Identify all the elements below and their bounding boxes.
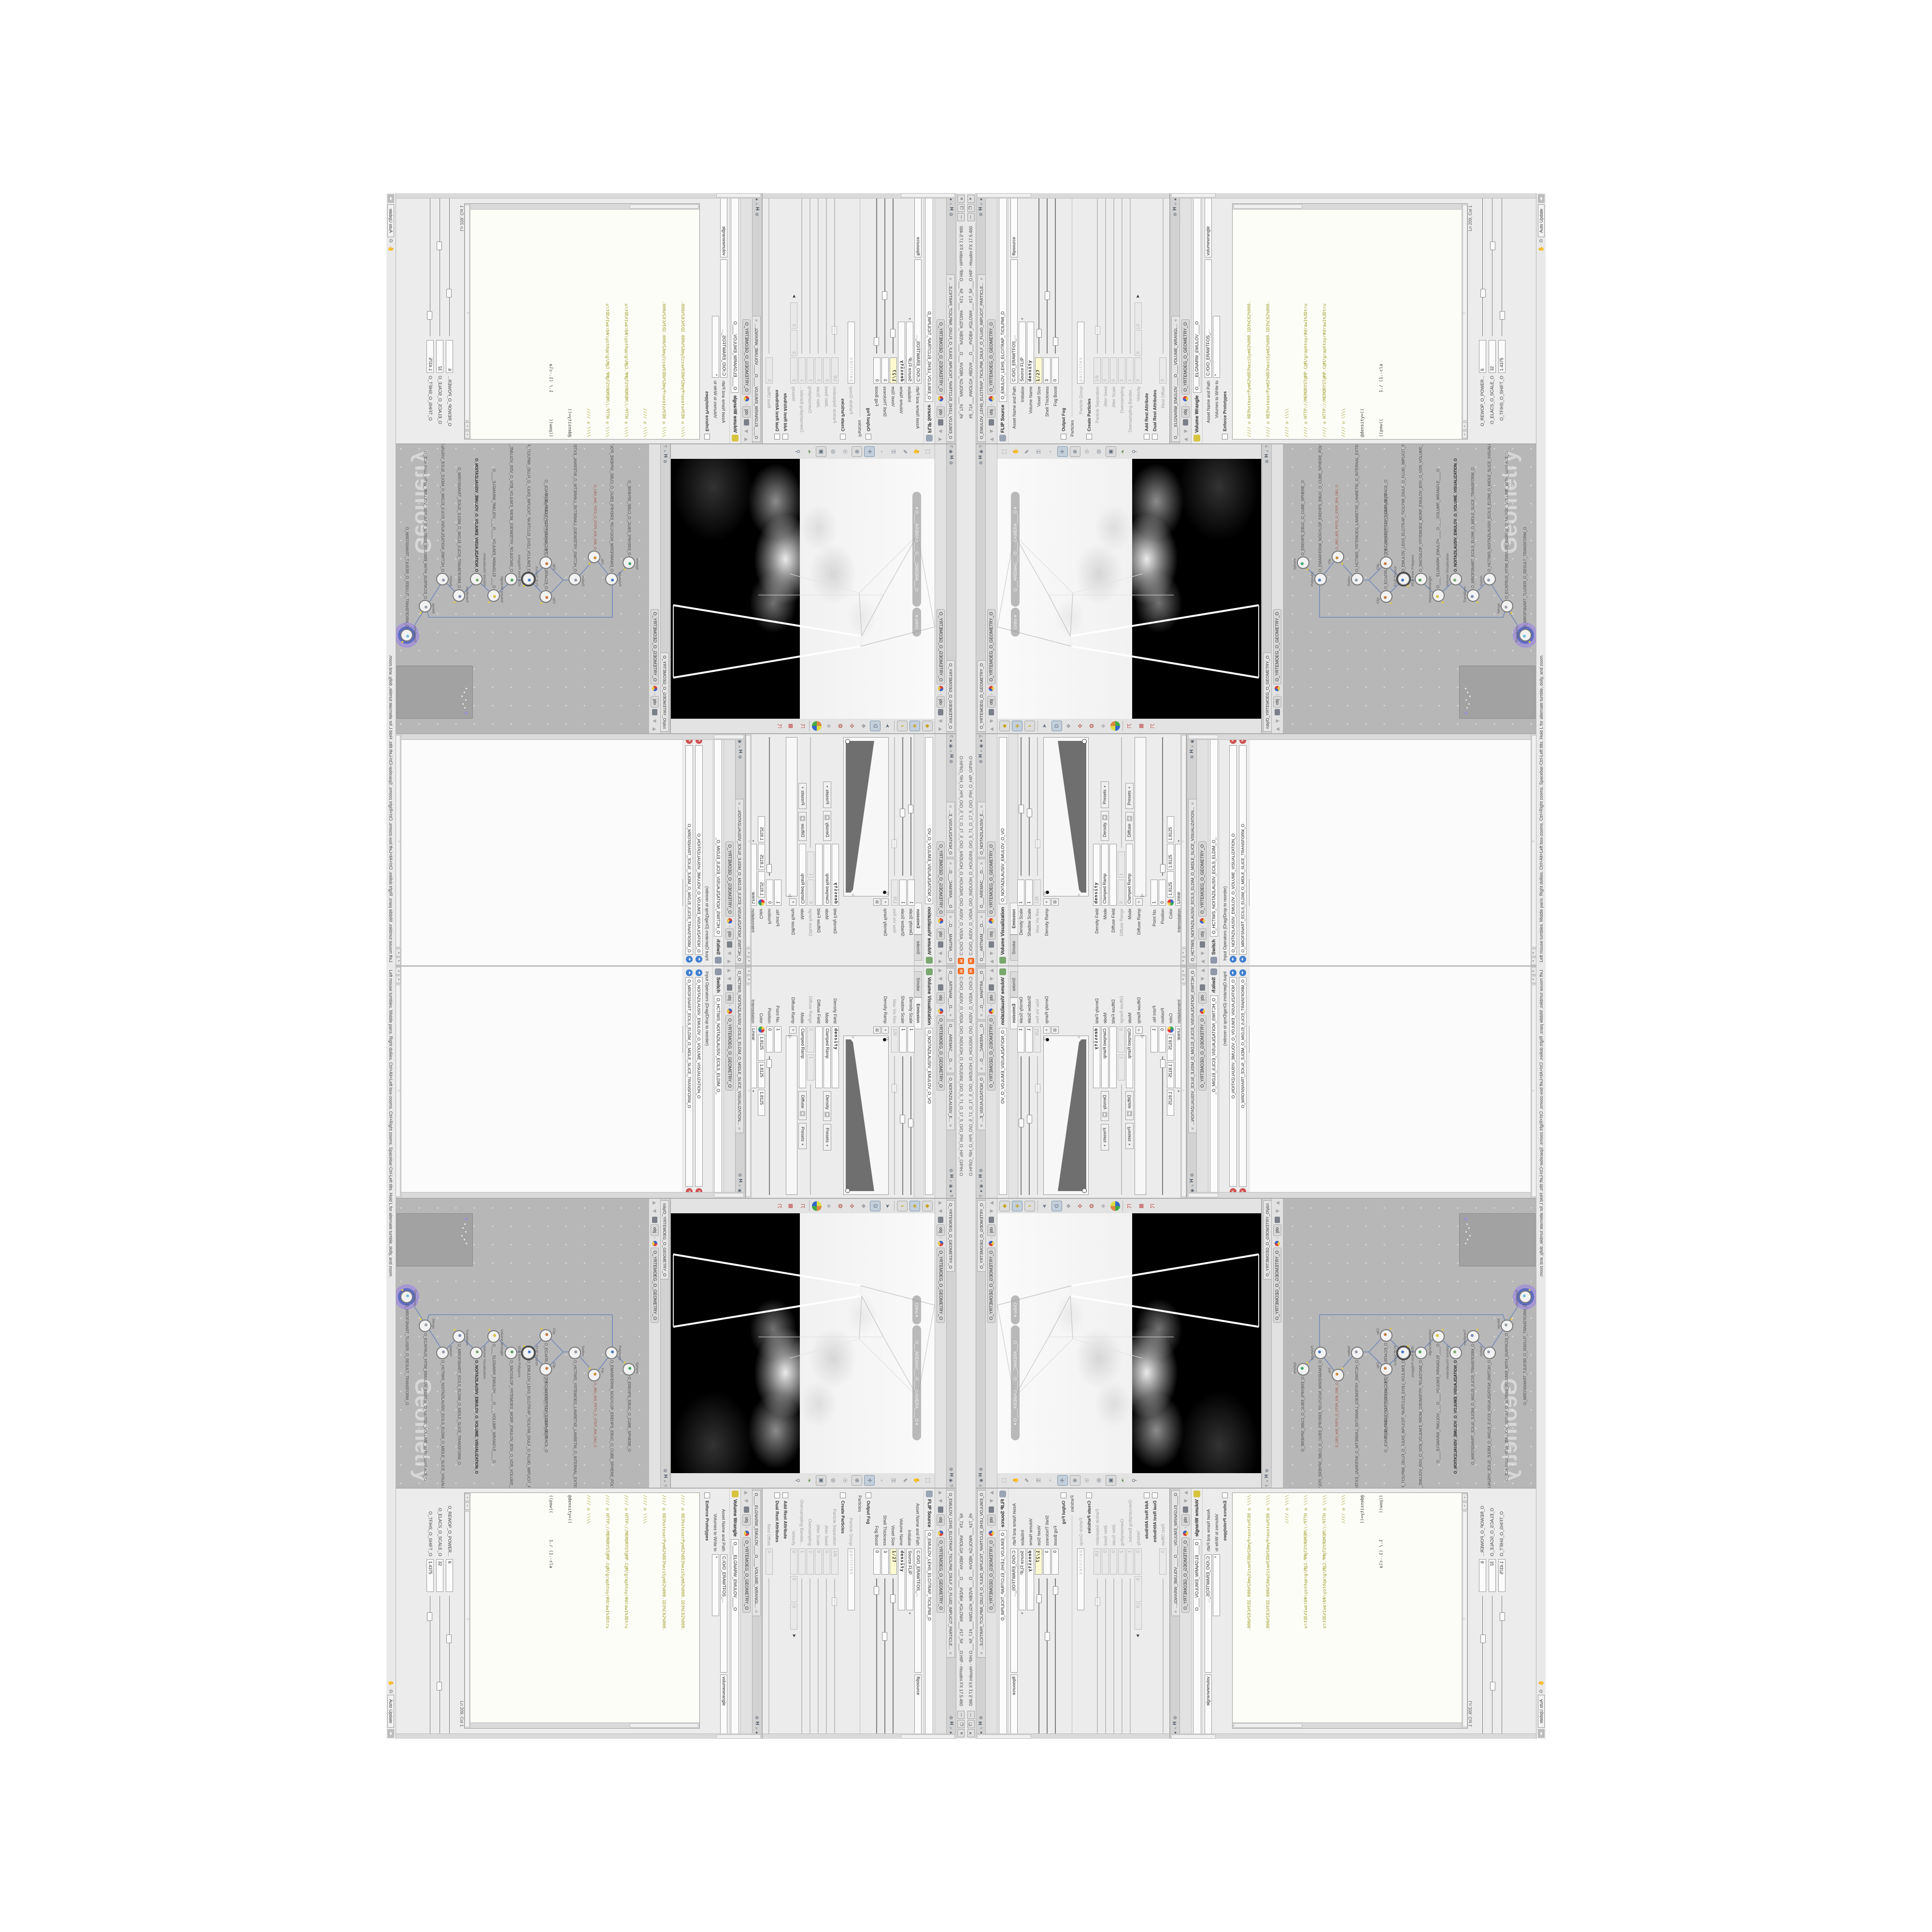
- rest-offset-slider[interactable]: [1160, 196, 1166, 354]
- position-slider[interactable]: [1159, 737, 1165, 876]
- position-field[interactable]: 0: [766, 1026, 773, 1052]
- target-icon[interactable]: ◉: [949, 744, 954, 748]
- houdini-pane-icon[interactable]: H: [738, 1179, 743, 1182]
- houdini-pane-icon[interactable]: H: [1264, 1475, 1269, 1478]
- shaded-mode-icon[interactable]: ◈: [909, 721, 920, 731]
- recycle-icon[interactable]: ♻: [1539, 239, 1544, 243]
- gear-icon[interactable]: ⚙: [1190, 755, 1194, 759]
- gear-icon[interactable]: ⚙: [755, 1716, 760, 1719]
- snap-point-icon[interactable]: ☈: [1148, 721, 1158, 731]
- create-particles-checkbox[interactable]: [1086, 1492, 1092, 1498]
- ramp-add-icon[interactable]: +: [1136, 1026, 1143, 1034]
- shift-slider[interactable]: [1499, 1596, 1505, 1734]
- pencil-icon[interactable]: ✎: [1023, 1476, 1032, 1485]
- horizontal-scrollbar[interactable]: ◂ ▸ ⠿: [396, 734, 401, 966]
- asset-name-field[interactable]: flipsource: [1010, 196, 1018, 257]
- pinwheel-icon[interactable]: [1110, 721, 1120, 731]
- fog-boost-field[interactable]: 0: [1051, 1548, 1059, 1575]
- node-name-field[interactable]: O_HCTIWS_NOITAZILAUSIV_ECILS_ELDIM_O_: [1210, 995, 1218, 1195]
- tab-mantra[interactable]: O___ARTNAM___O...✕: [947, 912, 955, 964]
- view-mode-icon[interactable]: D: [1051, 721, 1062, 731]
- density-scale-slider[interactable]: [1018, 737, 1024, 876]
- code-vertical-scrollbar[interactable]: [465, 1722, 699, 1728]
- nav-up-icon[interactable]: ▲: [988, 726, 995, 732]
- tab-scene-view[interactable]: O_YRTEMOEG_O_GEOMETRY_O: [947, 1200, 955, 1272]
- diffuse-range-max-field[interactable]: 1: [1118, 852, 1125, 878]
- tab-switch-pane[interactable]: O_HCTIWS_NOITAZILAUSIV_ECILS_ELDIM_O_MID…: [736, 799, 744, 964]
- ramp-add-icon[interactable]: +: [881, 898, 889, 906]
- update-mode-selector[interactable]: Auto Update: [1538, 1695, 1545, 1728]
- scale-field[interactable]: 32: [437, 340, 444, 373]
- close-button[interactable]: ✕: [958, 1729, 965, 1737]
- breadcrumb-node[interactable]: O_YRTEMOEG_O_GEOMETRY_O: [1273, 609, 1281, 684]
- scroll-left-icon[interactable]: ◂: [1181, 967, 1186, 975]
- help-icon[interactable]: ?: [663, 445, 668, 448]
- breadcrumb-context[interactable]: obj: [937, 1224, 945, 1236]
- breadcrumb-context[interactable]: obj: [937, 928, 945, 940]
- asset-path-field[interactable]: C:/O/O_ERAWTFOS_...: [1205, 259, 1212, 378]
- node-name-field[interactable]: O_NOITAZILAUSIV_EMULOV_O_VO: [925, 1028, 934, 1195]
- ramp-end-point[interactable]: [1082, 739, 1087, 744]
- breadcrumb-context[interactable]: obj: [1273, 1224, 1281, 1236]
- nav-down-icon[interactable]: ▼: [652, 718, 658, 724]
- tab-network-editor[interactable]: /obj/O_YRTEMOEG_O_GEOMETRY_O: [1263, 653, 1271, 732]
- ramp-grid-icon[interactable]: ⊞: [873, 898, 881, 906]
- tab-visualization[interactable]: O_NOITAZILAUSIV_E...✕: [947, 1075, 955, 1130]
- density-field-field[interactable]: density: [1093, 1026, 1100, 1088]
- vertical-scrollbar[interactable]: [976, 193, 1169, 199]
- power-slider[interactable]: [447, 1596, 453, 1734]
- velocity-x-field[interactable]: 0: [790, 1548, 797, 1575]
- diffuse-ramp-widget[interactable]: ▷: [786, 1036, 797, 1195]
- breadcrumb-context[interactable]: obj: [725, 928, 734, 940]
- breadcrumb-node[interactable]: O_YRTEMOEG_O_GEOMETRY_O: [937, 319, 945, 395]
- oversampling-field[interactable]: 2: [1118, 357, 1125, 384]
- diffuse-range-max-field[interactable]: 1: [807, 852, 814, 878]
- scale-field[interactable]: 32: [1489, 1559, 1496, 1592]
- max-vis-res-slider[interactable]: [892, 737, 898, 876]
- asset-path-field[interactable]: C:/O/O_ERAWTFOS_...: [720, 259, 727, 378]
- nav-up-icon[interactable]: ▲: [726, 967, 733, 974]
- max-vis-res-slider[interactable]: [1034, 737, 1040, 876]
- hand-icon[interactable]: ✋: [1011, 1476, 1021, 1485]
- title-bar[interactable]: H C:/O/O_AIDIV_O_VIDIA_O/O_INIDUOH_O_HOU…: [956, 966, 966, 1739]
- diffuse-range-slider[interactable]: [808, 737, 814, 848]
- nav-down-icon[interactable]: ▼: [1274, 1208, 1281, 1214]
- snowflake-icon[interactable]: ❄: [824, 721, 833, 731]
- color-g-field[interactable]: 1.8125: [758, 844, 765, 870]
- vertical-scrollbar[interactable]: [1187, 734, 1536, 740]
- volume-name-field[interactable]: density: [898, 1548, 905, 1610]
- jitter-seed-slider[interactable]: [824, 1578, 830, 1736]
- snowflake-icon[interactable]: ❄: [1099, 1201, 1108, 1211]
- view-mode-icon[interactable]: D: [1051, 1201, 1062, 1211]
- scroll-left-icon[interactable]: ◂: [1462, 1493, 1467, 1501]
- tab-smoke[interactable]: Smoke: [914, 935, 922, 961]
- reorder-icon[interactable]: ◂▸: [1239, 969, 1246, 976]
- code-horizontal-scrollbar[interactable]: ◂ ▸ ⠿: [465, 204, 470, 439]
- close-button[interactable]: ✕: [967, 195, 975, 203]
- title-bar[interactable]: H C:/O/O_AIDIV_O_VIDIA_O/O_INIDUOH_O_HOU…: [956, 193, 966, 966]
- breadcrumb-context[interactable]: obj: [1181, 406, 1190, 418]
- input-operator-field[interactable]: O_NOITAZILAUSIV_EMULOV_O_VOLUME_VISUALIZ…: [1229, 745, 1237, 955]
- rest-offset-field[interactable]: 0: [766, 1548, 773, 1575]
- scroll-right-icon[interactable]: ▸: [1181, 949, 1186, 956]
- max-vis-res-field[interactable]: 128: [1034, 1026, 1041, 1052]
- output-fog-checkbox[interactable]: [1061, 1492, 1066, 1498]
- diffuse-presets-button[interactable]: Presets▾: [1125, 1123, 1134, 1150]
- density-field-field[interactable]: density: [832, 1026, 839, 1088]
- pin-icon[interactable]: ●: [979, 1190, 983, 1193]
- probe-icon[interactable]: ⚲: [1130, 1476, 1139, 1485]
- color-g-field[interactable]: 1.8125: [1167, 844, 1174, 870]
- gear-icon[interactable]: ⚙: [1264, 459, 1269, 463]
- point-no-field[interactable]: 1: [1151, 880, 1158, 906]
- diffuse-range-min-field[interactable]: 0: [1118, 1026, 1125, 1052]
- tab-flip-source-pane[interactable]: O_EMULOV_LEHS_ELCITRAP_TICILPMI_DIULF_O_…: [977, 1490, 985, 1658]
- shell-thickness-slider[interactable]: [882, 196, 888, 354]
- reorder-icon[interactable]: ◂▸: [1230, 956, 1236, 963]
- eye-icon[interactable]: ☉: [840, 447, 850, 456]
- scrollbar-thumb[interactable]: ⠿: [1532, 985, 1536, 1197]
- position-slider[interactable]: [1159, 1056, 1165, 1195]
- density-presets-button[interactable]: Presets▾: [823, 1124, 831, 1151]
- houdini-pane-icon[interactable]: H: [1190, 1179, 1194, 1182]
- velocity-x-field[interactable]: 0: [790, 357, 797, 384]
- nav-up-icon[interactable]: ▲: [938, 726, 944, 732]
- node-name-field[interactable]: O_NOITAZILAUSIV_EMULOV_O_VO: [999, 1028, 1007, 1195]
- plant-icon[interactable]: ❧: [1118, 447, 1128, 456]
- nav-down-icon[interactable]: ▼: [988, 976, 995, 982]
- reorder-icon[interactable]: ◂▸: [1230, 969, 1236, 976]
- snap-grid-icon[interactable]: ▦: [786, 1201, 796, 1211]
- gear-icon[interactable]: ⚙: [663, 1469, 668, 1473]
- hand-icon[interactable]: ✋: [1539, 1680, 1544, 1686]
- title-bar[interactable]: H C:/O/O_AIDIV_O_VIDIA_O/O_INIDUOH_O_HOU…: [966, 193, 976, 966]
- scale-slider[interactable]: [1489, 1596, 1495, 1734]
- shadow-scale-field[interactable]: 1: [1025, 880, 1033, 906]
- ramp-add-icon[interactable]: +: [1043, 898, 1051, 906]
- density-ramp-widget[interactable]: ▽ ▷: [1043, 737, 1089, 896]
- vertical-scrollbar[interactable]: [396, 1733, 762, 1739]
- density-scale-slider[interactable]: [908, 1056, 914, 1195]
- fog-boost-field[interactable]: 0: [873, 357, 881, 384]
- houdini-pane-icon[interactable]: H: [949, 754, 954, 757]
- nav-down-icon[interactable]: ▼: [988, 1498, 995, 1504]
- power-slider[interactable]: [1479, 1596, 1486, 1734]
- view-mode-icon[interactable]: D: [870, 1201, 881, 1211]
- particle-separation-slider[interactable]: [1094, 196, 1100, 354]
- breadcrumb-node[interactable]: O_YRTEMOEG_O_GEOMETRY_O: [937, 841, 945, 917]
- tab-scene-view[interactable]: O_YRTEMOEG_O_GEOMETRY_O: [977, 660, 985, 732]
- add-rest-attribute-checkbox[interactable]: [783, 1492, 789, 1498]
- shadow-scale-slider[interactable]: [900, 737, 906, 876]
- velocity-x-field[interactable]: 0: [1135, 1548, 1142, 1575]
- display-box-icon[interactable]: ▣: [1106, 1475, 1116, 1486]
- nav-up-icon[interactable]: ▲: [1182, 1490, 1189, 1496]
- help-icon[interactable]: ?: [979, 1194, 983, 1197]
- breadcrumb-node[interactable]: O_YRTEMOEG_O_GEOMETRY_O: [1198, 841, 1207, 917]
- color-wheel-icon[interactable]: [758, 899, 765, 906]
- tab-camera[interactable]: O___AREMAC___O...✕: [977, 1021, 985, 1073]
- jack-tool-icon[interactable]: ✣: [847, 1201, 856, 1211]
- dual-rest-attributes-checkbox[interactable]: [775, 1492, 781, 1498]
- target-icon[interactable]: ◉: [979, 744, 983, 748]
- scroll-right-icon[interactable]: ▸: [465, 422, 470, 430]
- voxel-size-field[interactable]: 1/27: [890, 1548, 897, 1575]
- shift-field[interactable]: 1.4375: [1498, 1559, 1506, 1592]
- code-horizontal-scrollbar[interactable]: ◂ ▸ ⠿: [1462, 204, 1467, 439]
- diffuse-range-min-field[interactable]: 0: [807, 1026, 814, 1052]
- plant-icon[interactable]: ❧: [804, 1476, 814, 1485]
- tab-network-editor[interactable]: /obj/O_YRTEMOEG_O_GEOMETRY_O: [661, 653, 669, 732]
- density-ramp-widget[interactable]: ▽ ▷: [1043, 1036, 1089, 1195]
- target-add-icon[interactable]: ⊕: [852, 446, 862, 457]
- node-name-field[interactable]: O_EMULOV_LEHS_ELCITRAP_TICILPMI_D: [925, 196, 934, 402]
- minimize-button[interactable]: —: [958, 213, 965, 221]
- vertical-scrollbar[interactable]: [1187, 1192, 1536, 1198]
- rest-offset-slider[interactable]: [766, 1578, 772, 1736]
- density-scale-field[interactable]: 1: [1017, 880, 1024, 906]
- density-field-field[interactable]: density: [832, 844, 839, 906]
- gear-icon[interactable]: ⚙: [949, 461, 954, 465]
- shell-thickness-field[interactable]: 3: [1043, 357, 1051, 384]
- breadcrumb-node[interactable]: O_YRTEMOEG_O_GEOMETRY_O: [651, 609, 659, 684]
- ramp-end-point[interactable]: [1082, 1188, 1087, 1193]
- diffuse-range-min-field[interactable]: 0: [807, 880, 814, 906]
- oversampling-bandwidth-slider[interactable]: [1127, 196, 1133, 354]
- voxel-size-slider[interactable]: [1036, 1578, 1042, 1736]
- tab-network-editor[interactable]: /obj/O_YRTEMOEG_O_GEOMETRY_O: [661, 1200, 669, 1279]
- breadcrumb-node[interactable]: O_YRTEMOEG_O_GEOMETRY_O: [1198, 1015, 1207, 1091]
- shift-field[interactable]: 1.4375: [1498, 340, 1506, 373]
- ramp-marker-top[interactable]: ▽: [1043, 892, 1048, 895]
- tab-mantra[interactable]: O___ARTNAM___O...✕: [977, 912, 985, 964]
- spotlight-icon[interactable]: ◗: [1024, 721, 1035, 731]
- breadcrumb-context[interactable]: obj: [937, 1514, 945, 1526]
- network-canvas[interactable]: Geometry: [396, 444, 649, 733]
- ortho-pill-button[interactable]: Ortho ▾: [1011, 608, 1020, 637]
- highlight-icon[interactable]: ◆: [999, 721, 1010, 731]
- breadcrumb-node[interactable]: O_YRTEMOEG_O_GEOMETRY_O: [937, 1537, 945, 1613]
- nav-down-icon[interactable]: ▼: [1182, 1498, 1189, 1504]
- create-particles-checkbox[interactable]: [840, 1492, 846, 1498]
- scrollbar-thumb[interactable]: ⠿: [1463, 1511, 1467, 1727]
- velocity-z-field[interactable]: 0: [1135, 302, 1142, 328]
- maximize-button[interactable]: ❐: [967, 1720, 975, 1728]
- vexpression-code-editor[interactable]: //// ◎ 0D3%steserPym62%0D3%eziSym62%000.…: [464, 203, 700, 440]
- code-horizontal-scrollbar[interactable]: ◂ ▸ ⠿: [1462, 1493, 1467, 1728]
- output-fog-checkbox[interactable]: [866, 434, 872, 440]
- node-name-field[interactable]: O____ELGNARW_EMULOV____O: [1193, 1539, 1201, 1736]
- fog-boost-slider[interactable]: [874, 196, 880, 354]
- diffuse-field-field[interactable]: [815, 1026, 823, 1088]
- density-button[interactable]: Density◂▸: [823, 811, 831, 841]
- code-vertical-scrollbar[interactable]: [1233, 204, 1467, 210]
- key-icon[interactable]: ⚿: [888, 1476, 898, 1485]
- select-arrow-icon[interactable]: ➤: [1040, 1201, 1050, 1211]
- nav-down-icon[interactable]: ▼: [1274, 718, 1281, 724]
- dot-icon[interactable]: ◦: [877, 1476, 886, 1485]
- breadcrumb-node[interactable]: O_YRTEMOEG_O_GEOMETRY_O: [725, 1015, 734, 1091]
- oversampling-bandwidth-field[interactable]: 1: [798, 357, 806, 384]
- pinwheel-icon[interactable]: [812, 1201, 822, 1211]
- houdini-pane-icon[interactable]: H: [979, 1721, 983, 1725]
- jitter-scale-field[interactable]: 0: [815, 357, 822, 384]
- jitter-scale-field[interactable]: 0: [815, 1548, 822, 1575]
- tab-camera[interactable]: O___AREMAC___O...✕: [947, 1021, 955, 1073]
- power-field[interactable]: 6: [446, 340, 454, 373]
- oversampling-bandwidth-slider[interactable]: [799, 196, 805, 354]
- target-add-icon[interactable]: ⊕: [852, 1475, 862, 1486]
- rest-offset-slider[interactable]: [766, 196, 772, 354]
- maximize-button[interactable]: ❐: [967, 204, 975, 212]
- houdini-pane-icon[interactable]: H: [979, 1174, 983, 1178]
- tab-flip-source-pane[interactable]: O_EMULOV_LEHS_ELCITRAP_TICILPMI_DIULF_O_…: [977, 274, 985, 442]
- density-mode-field[interactable]: Clamped Ramp: [824, 844, 831, 906]
- ramp-marker-left[interactable]: ▷: [1076, 1036, 1081, 1038]
- jitter-scale-slider[interactable]: [1110, 1578, 1117, 1736]
- tab-mantra[interactable]: O___ARTNAM___O...✕: [977, 968, 985, 1020]
- tab-camera[interactable]: O___AREMAC___O...✕: [947, 859, 955, 911]
- enforce-prototypes-checkbox[interactable]: [1222, 1492, 1228, 1498]
- initialize-dropdown[interactable]: Source FLIP: [906, 1548, 913, 1610]
- camera-pill-button[interactable]: O___AREMAC___O____CAMERA____O ▾: [1011, 492, 1020, 607]
- scale-slider[interactable]: [437, 198, 443, 336]
- node-name-field[interactable]: O____ELGNARW_EMULOV____O: [731, 1539, 739, 1736]
- node-name-field[interactable]: O_EMULOV_LEHS_ELCITRAP_TICILPMI_D: [925, 1530, 934, 1736]
- diffuse-field-field[interactable]: [815, 844, 823, 906]
- search-icon[interactable]: ⌕: [949, 202, 954, 205]
- scroll-left-icon[interactable]: ◂: [1181, 957, 1186, 965]
- search-icon[interactable]: ⌕: [663, 1480, 668, 1482]
- key-icon[interactable]: ⚿: [888, 447, 898, 456]
- volumes-to-write-field[interactable]: *: [1213, 1554, 1220, 1616]
- density-ramp-widget[interactable]: ▽ ▷: [843, 737, 889, 896]
- oversampling-bandwidth-field[interactable]: 1: [1126, 1548, 1134, 1575]
- gear-icon[interactable]: ⚙: [979, 213, 983, 216]
- gear-icon[interactable]: ⚙: [979, 1467, 983, 1471]
- hand-icon[interactable]: ✋: [911, 447, 921, 456]
- jack-tool-icon[interactable]: ✣: [1076, 721, 1085, 731]
- scale-slider[interactable]: [1489, 198, 1495, 336]
- viewport-canvas[interactable]: Ortho ▾ O___AREMAC___O____CAMERA____O ▾: [997, 459, 1261, 719]
- shadow-scale-field[interactable]: 1: [899, 880, 907, 906]
- ramp-grid-icon[interactable]: ⊞: [873, 1026, 881, 1034]
- shift-slider[interactable]: [1499, 198, 1505, 336]
- voxel-size-field[interactable]: 1/27: [890, 357, 897, 384]
- diffuse-field-field[interactable]: [1109, 844, 1117, 906]
- nav-down-icon[interactable]: ▼: [988, 1208, 995, 1214]
- horizontal-scrollbar[interactable]: ◂ ▸ ⠿: [396, 966, 401, 1198]
- color-b-field[interactable]: 1.8125: [758, 1090, 765, 1116]
- enforce-prototypes-checkbox[interactable]: [705, 434, 710, 440]
- voxel-size-field[interactable]: 1/27: [1035, 1548, 1042, 1575]
- shift-slider[interactable]: [427, 198, 434, 336]
- target-icon[interactable]: ◉: [738, 739, 743, 743]
- pose-icon[interactable]: ✥: [1064, 1201, 1074, 1211]
- help-icon[interactable]: ?: [1264, 1484, 1269, 1487]
- oversampling-bandwidth-slider[interactable]: [1127, 1578, 1133, 1736]
- tab-camera[interactable]: O___AREMAC___O...✕: [977, 859, 985, 911]
- velocity-z-field[interactable]: 0: [790, 302, 797, 328]
- search-icon[interactable]: ⌕: [1264, 1480, 1269, 1482]
- max-vis-res-slider[interactable]: [1034, 1056, 1040, 1195]
- breadcrumb-context[interactable]: obj: [651, 1224, 659, 1236]
- breadcrumb-node[interactable]: O_YRTEMOEG_O_GEOMETRY_O: [937, 1248, 945, 1323]
- gear-icon[interactable]: ⚙: [949, 1168, 954, 1172]
- breadcrumb-context[interactable]: obj: [1273, 696, 1281, 708]
- scrollbar-thumb[interactable]: ⠿: [465, 1511, 470, 1727]
- diffuse-range-slider[interactable]: [808, 1084, 814, 1195]
- lens-icon[interactable]: ◎: [828, 1476, 838, 1485]
- lens-icon[interactable]: ◎: [828, 447, 838, 456]
- help-icon[interactable]: ?: [949, 735, 954, 738]
- snap-magnet-icon[interactable]: ☈: [1125, 721, 1135, 731]
- key-icon[interactable]: ⚿: [1034, 1476, 1044, 1485]
- help-icon[interactable]: ?: [949, 445, 954, 448]
- scrollbar-thumb[interactable]: ⠿: [746, 735, 751, 947]
- search-icon[interactable]: ⌕: [1264, 450, 1269, 452]
- tab-network-editor[interactable]: /obj/O_YRTEMOEG_O_GEOMETRY_O: [1263, 1200, 1271, 1279]
- highlight-icon[interactable]: ◆: [999, 1201, 1010, 1211]
- diffuse-ramp-widget[interactable]: ▷: [786, 737, 797, 896]
- network-canvas[interactable]: Geometry: [1283, 1199, 1536, 1488]
- shadow-scale-slider[interactable]: [900, 1056, 906, 1195]
- add-rest-attribute-checkbox[interactable]: [1144, 1492, 1150, 1498]
- nav-up-icon[interactable]: ▲: [1199, 958, 1206, 965]
- particle-group-field[interactable]: particles: [848, 322, 855, 384]
- tab-volume-wrangle-pane[interactable]: O____ELGNARW_EMULOV____O____VOLUME_WRANG…: [753, 1490, 761, 1616]
- diffuse-presets-button[interactable]: Presets▾: [798, 783, 807, 810]
- density-presets-button[interactable]: Presets▾: [823, 781, 831, 808]
- highlight-icon[interactable]: ◆: [922, 1201, 933, 1211]
- diffuse-range-slider[interactable]: [1118, 1084, 1124, 1195]
- initialize-dropdown[interactable]: Source FLIP: [906, 322, 913, 384]
- point-no-field[interactable]: 1: [774, 1026, 781, 1052]
- highlight-icon[interactable]: ◆: [922, 721, 933, 731]
- reorder-icon[interactable]: ◂▸: [1239, 956, 1246, 963]
- breadcrumb-context[interactable]: obj: [937, 992, 945, 1004]
- vexpression-code-editor[interactable]: //// ◎ 0D3%steserPym62%0D3%eziSym62%000.…: [1232, 203, 1468, 440]
- oversampling-field[interactable]: 2: [807, 1548, 814, 1575]
- input-operator-field[interactable]: O_NOITAZILAUSIV_EMULOV_O_VOLUME_VISUALIZ…: [1229, 977, 1237, 1187]
- minimize-button[interactable]: —: [958, 1711, 965, 1719]
- pencil-icon[interactable]: ✎: [900, 447, 909, 456]
- layout-icon[interactable]: ⬚: [923, 447, 933, 456]
- scale-field[interactable]: 32: [437, 1559, 444, 1592]
- probe-icon[interactable]: ⚲: [793, 447, 802, 456]
- search-icon[interactable]: ⌕: [1173, 202, 1178, 205]
- scroll-right-icon[interactable]: ▸: [396, 949, 401, 956]
- display-box-icon[interactable]: ▣: [816, 1475, 826, 1486]
- scroll-right-icon[interactable]: ▸: [1462, 1502, 1467, 1510]
- update-mode-spinner[interactable]: ◂▸: [387, 1729, 394, 1738]
- asset-name-field[interactable]: volumewrangle: [1205, 1675, 1212, 1736]
- target-icon[interactable]: ◉: [949, 1184, 954, 1188]
- scroll-right-icon[interactable]: ▸: [1462, 422, 1467, 430]
- input-operator-field[interactable]: O_NOITAZILAUSIV_EMULOV_O_VOLUME_VISUALIZ…: [696, 745, 703, 955]
- search-icon[interactable]: ⌕: [755, 1727, 760, 1730]
- diffuse-button[interactable]: Diffuse◂▸: [1125, 812, 1134, 841]
- nav-down-icon[interactable]: ▼: [726, 976, 733, 982]
- vertical-scrollbar[interactable]: [763, 1733, 956, 1739]
- diffuse-range-slider[interactable]: [1118, 737, 1124, 848]
- close-button[interactable]: ✕: [967, 1729, 975, 1737]
- tab-flip-source-pane[interactable]: O_EMULOV_LEHS_ELCITRAP_TICILPMI_DIULF_O_…: [947, 274, 955, 442]
- camera-pill-button[interactable]: O___AREMAC___O____CAMERA____O ▾: [912, 1325, 921, 1440]
- density-button[interactable]: Density◂▸: [823, 1091, 831, 1121]
